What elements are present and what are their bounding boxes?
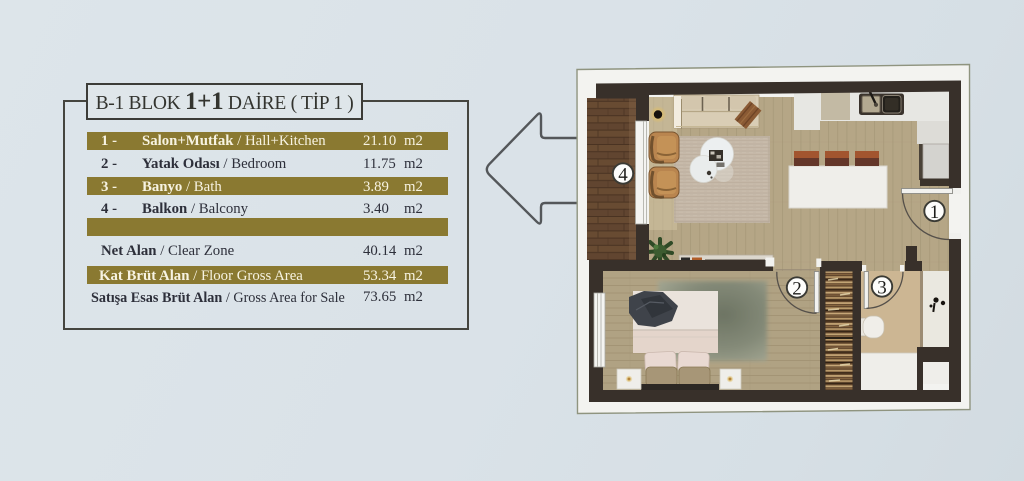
svg-text:4: 4 <box>618 165 628 186</box>
svg-text:1: 1 <box>930 202 940 223</box>
svg-text:3: 3 <box>877 278 887 299</box>
svg-text:2: 2 <box>792 279 802 300</box>
